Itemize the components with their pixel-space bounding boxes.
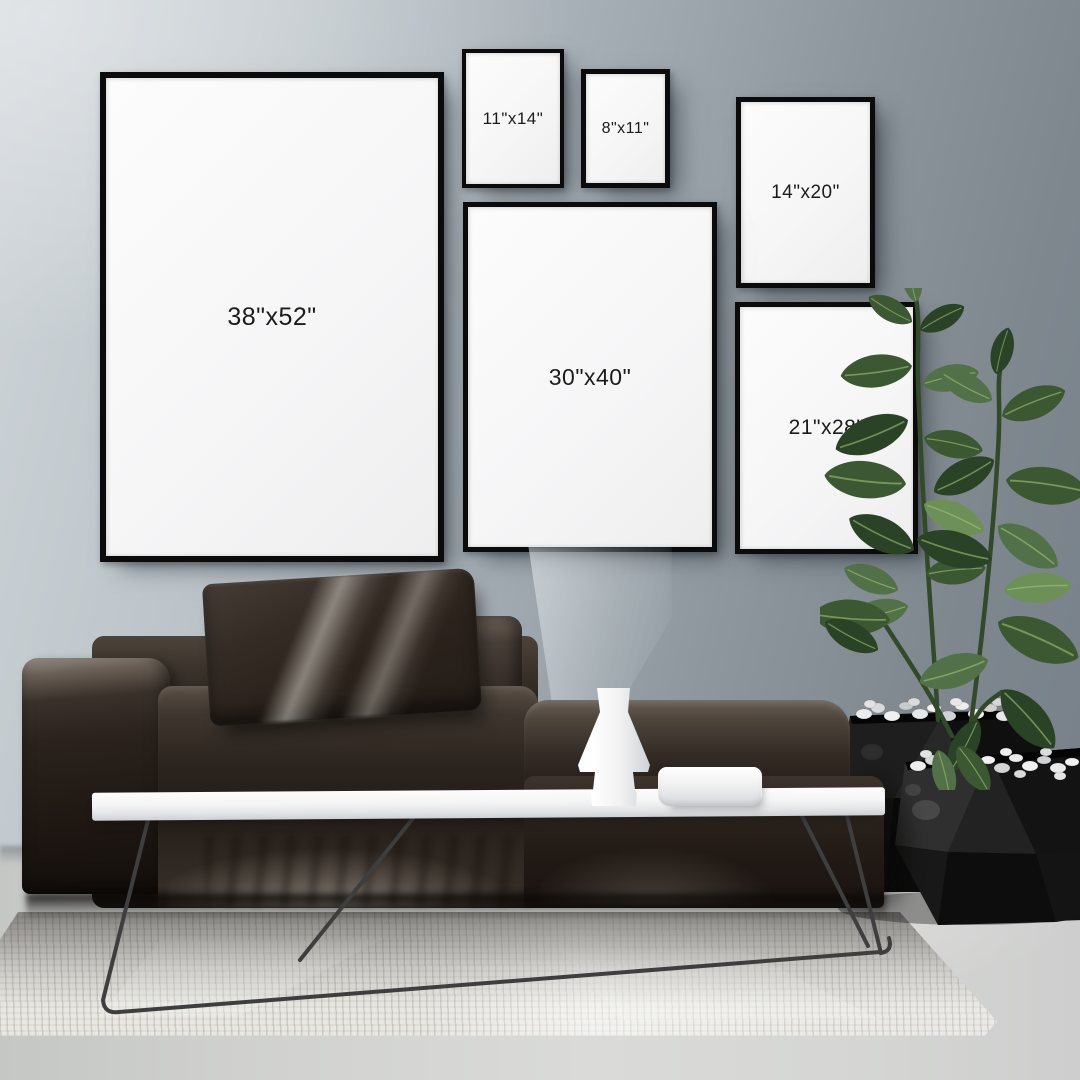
coffee-table-top xyxy=(92,787,885,821)
plant-leaves xyxy=(820,288,1080,790)
potted-plant xyxy=(820,288,1080,790)
living-room-scene: 38"x52" 11"x14" 8"x11" 14"x20" 30"x40" 2… xyxy=(0,0,1080,1080)
bowl xyxy=(658,767,762,806)
